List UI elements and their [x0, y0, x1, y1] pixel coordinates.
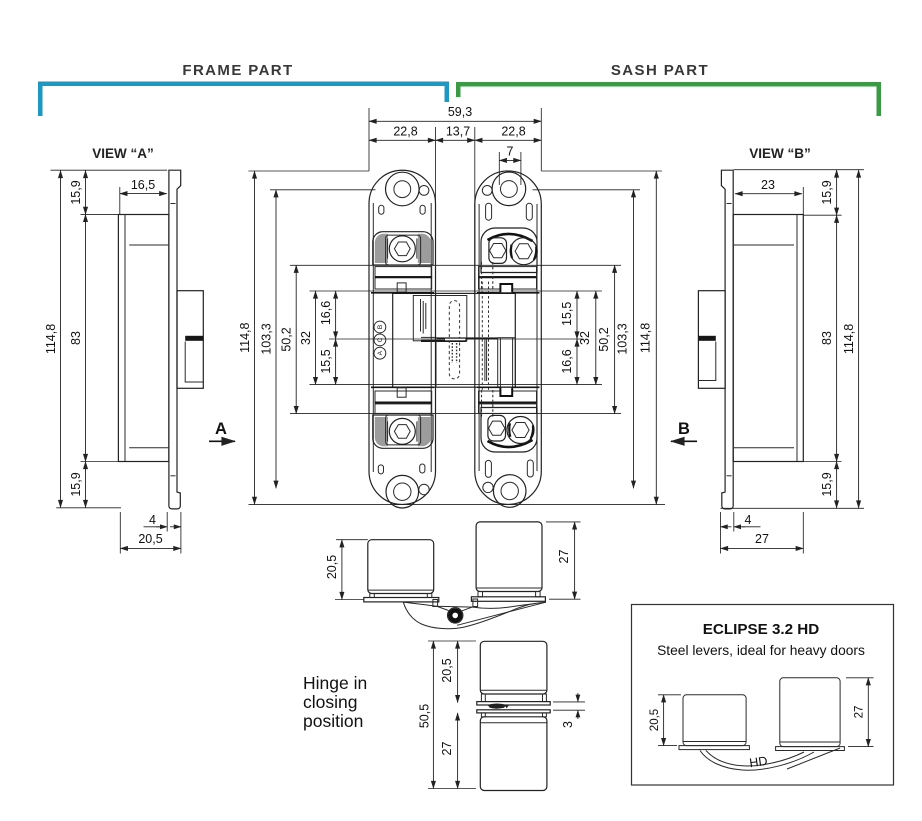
svg-text:27: 27 [853, 706, 865, 719]
svg-text:B: B [678, 420, 690, 438]
svg-text:A: A [215, 420, 227, 438]
svg-text:50,2: 50,2 [280, 327, 294, 351]
svg-text:closing: closing [303, 692, 357, 712]
svg-text:16,6: 16,6 [560, 349, 574, 373]
svg-text:32: 32 [578, 331, 592, 345]
svg-text:15,5: 15,5 [560, 302, 574, 326]
svg-text:22,8: 22,8 [393, 124, 417, 138]
svg-text:32: 32 [299, 331, 313, 345]
svg-text:SASH PART: SASH PART [611, 62, 709, 79]
svg-text:50,2: 50,2 [597, 327, 611, 351]
svg-text:103,3: 103,3 [616, 323, 630, 354]
svg-text:16,6: 16,6 [319, 301, 333, 325]
svg-text:114,8: 114,8 [639, 323, 653, 353]
svg-text:22,8: 22,8 [501, 124, 525, 138]
svg-text:FRAME PART: FRAME PART [182, 62, 293, 79]
svg-text:15,9: 15,9 [820, 180, 834, 204]
svg-text:16,5: 16,5 [131, 178, 155, 192]
svg-text:20,5: 20,5 [440, 658, 454, 682]
svg-text:27: 27 [557, 550, 571, 564]
svg-text:15,9: 15,9 [69, 180, 83, 204]
svg-text:HD: HD [749, 754, 769, 770]
svg-text:20,5: 20,5 [649, 709, 661, 731]
svg-text:Hinge in: Hinge in [303, 673, 367, 693]
svg-text:VIEW “A”: VIEW “A” [92, 146, 154, 161]
svg-text:15,5: 15,5 [319, 349, 333, 373]
svg-text:position: position [303, 711, 363, 731]
svg-text:83: 83 [820, 331, 834, 345]
svg-text:3: 3 [561, 721, 575, 728]
svg-text:114,8: 114,8 [238, 322, 252, 352]
svg-text:A: A [377, 350, 384, 355]
svg-text:4: 4 [745, 513, 752, 527]
svg-text:C: C [377, 337, 384, 342]
svg-text:15,9: 15,9 [69, 472, 83, 496]
svg-text:59,3: 59,3 [448, 105, 472, 119]
svg-text:VIEW “B”: VIEW “B” [749, 146, 811, 161]
svg-text:23: 23 [761, 178, 775, 192]
svg-text:20,5: 20,5 [138, 532, 162, 546]
svg-text:50,5: 50,5 [418, 704, 432, 728]
svg-text:27: 27 [755, 532, 769, 546]
svg-text:20,5: 20,5 [325, 555, 339, 579]
svg-text:7: 7 [507, 144, 514, 158]
svg-text:83: 83 [69, 331, 83, 345]
svg-text:13,7: 13,7 [446, 124, 470, 138]
svg-text:114,8: 114,8 [842, 324, 856, 354]
svg-text:114,8: 114,8 [44, 324, 58, 354]
svg-text:4: 4 [149, 513, 156, 527]
svg-text:27: 27 [440, 742, 454, 756]
svg-text:Steel levers, ideal for heavy: Steel levers, ideal for heavy doors [657, 643, 865, 658]
svg-text:15,9: 15,9 [820, 472, 834, 496]
svg-text:B: B [377, 325, 384, 329]
svg-text:103,3: 103,3 [260, 323, 274, 354]
svg-text:ECLIPSE 3.2 HD: ECLIPSE 3.2 HD [703, 621, 820, 638]
